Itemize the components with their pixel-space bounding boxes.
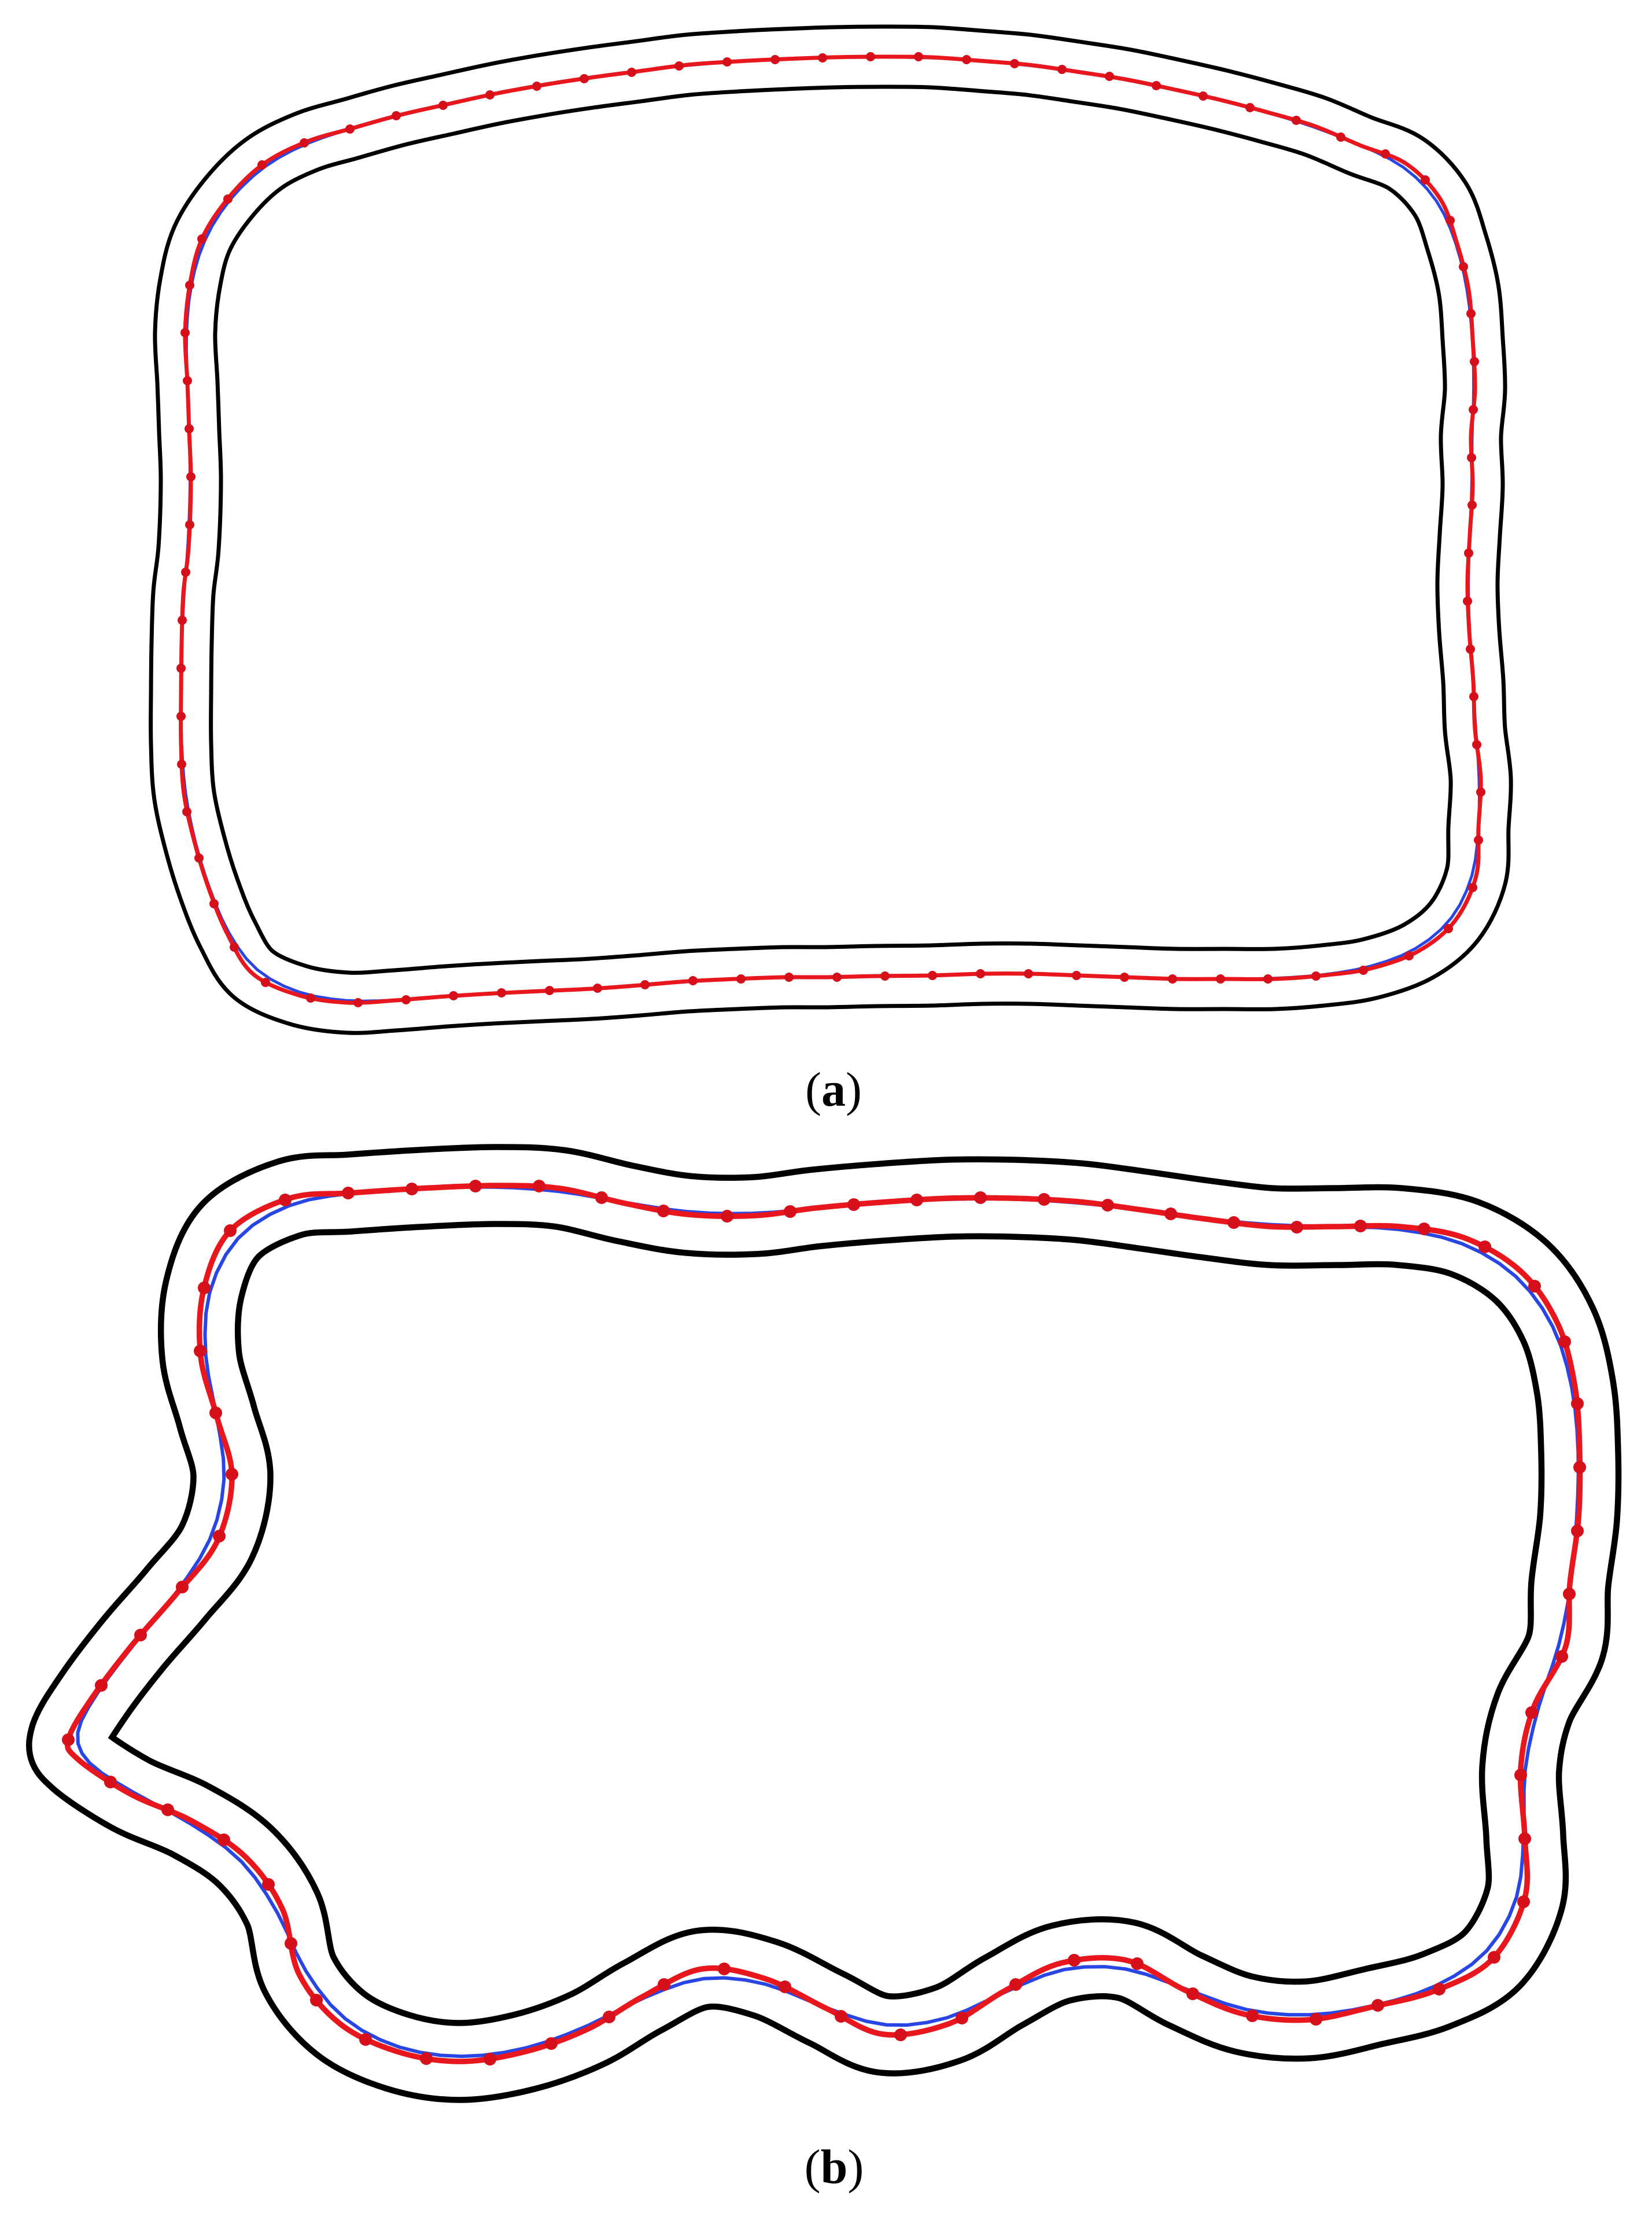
svg-text:(a): (a) xyxy=(805,1063,862,1117)
svg-text:(b): (b) xyxy=(805,2140,864,2194)
